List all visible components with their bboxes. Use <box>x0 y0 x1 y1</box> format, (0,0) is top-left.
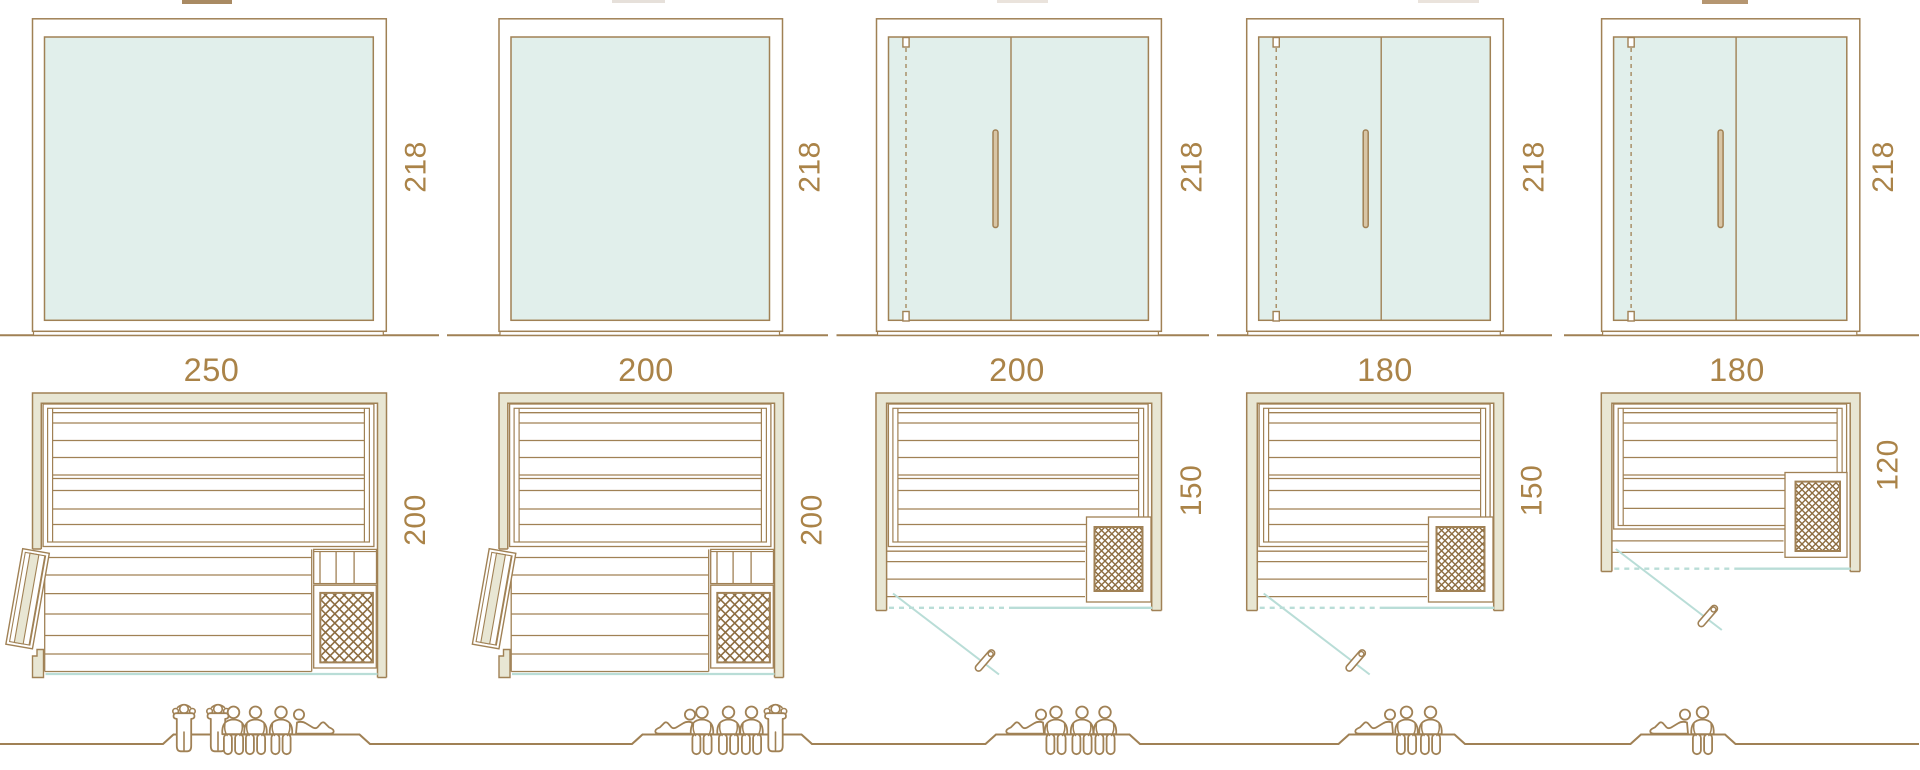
svg-text:120: 120 <box>1872 439 1905 491</box>
svg-text:218: 218 <box>1176 141 1209 193</box>
svg-text:150: 150 <box>1175 465 1208 517</box>
svg-text:200: 200 <box>399 494 432 546</box>
svg-text:250: 250 <box>184 352 240 388</box>
svg-text:200: 200 <box>796 494 829 546</box>
svg-text:150: 150 <box>1515 465 1548 517</box>
svg-text:218: 218 <box>794 141 827 193</box>
svg-text:218: 218 <box>1518 141 1551 193</box>
svg-text:180: 180 <box>1709 352 1765 388</box>
svg-text:200: 200 <box>989 352 1045 388</box>
svg-text:218: 218 <box>1867 141 1900 193</box>
svg-text:200: 200 <box>618 352 674 388</box>
svg-text:180: 180 <box>1357 352 1413 388</box>
svg-text:218: 218 <box>400 141 433 193</box>
